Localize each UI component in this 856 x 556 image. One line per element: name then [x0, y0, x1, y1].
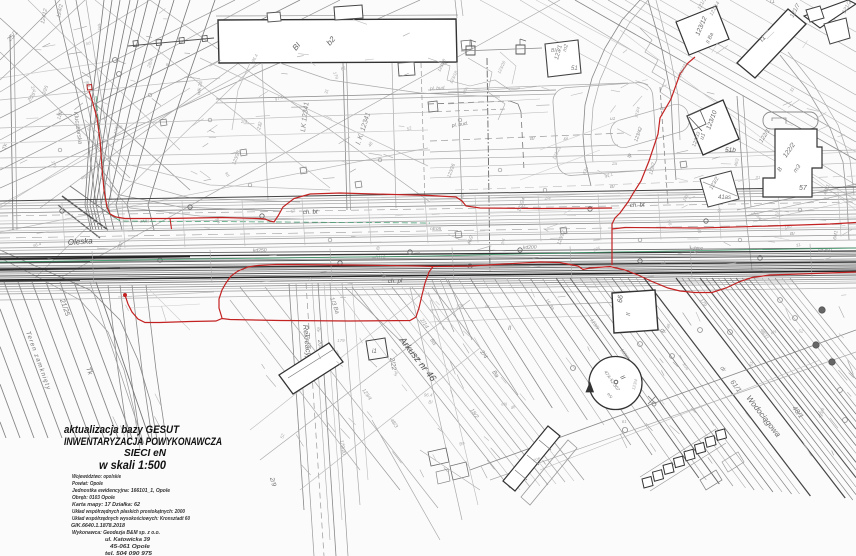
svg-text:tel. 504 090 975: tel. 504 090 975 [105, 551, 153, 556]
svg-text:45-061 Opole: 45-061 Opole [109, 544, 150, 550]
svg-text:BI: BI [551, 48, 556, 54]
svg-text:2/4: 2/4 [240, 119, 248, 124]
svg-text:Wykonawca: Geodezja B&M sp. z: Wykonawca: Geodezja B&M sp. z o.o. [72, 530, 160, 536]
svg-text:61: 61 [166, 62, 171, 67]
svg-text:II: II [508, 326, 512, 332]
svg-text:Oleska: Oleska [68, 236, 94, 247]
svg-text:Obręb: 0103 Opole: Obręb: 0103 Opole [72, 495, 115, 501]
svg-text:eN: eN [501, 402, 507, 407]
svg-text:ch. bt: ch. bt [303, 209, 318, 216]
svg-text:nE05: nE05 [430, 226, 442, 232]
svg-text:Powiat: Opole: Powiat: Opole [72, 481, 103, 487]
svg-text:41as: 41as [718, 195, 731, 201]
svg-text:66: 66 [617, 295, 625, 303]
svg-text:i1: i1 [372, 349, 377, 355]
svg-text:BI: BI [790, 231, 795, 237]
svg-text:51: 51 [571, 66, 578, 72]
svg-text:51b: 51b [725, 147, 736, 154]
svg-text:Jednostka ewidencyjna: 166101_: Jednostka ewidencyjna: 166101_1, Opole [72, 488, 170, 494]
svg-text:kd200: kd200 [690, 246, 703, 252]
svg-text:kd200: kd200 [523, 245, 537, 251]
svg-text:61: 61 [485, 304, 490, 309]
svg-text:GIK.6640.1.1878.2018: GIK.6640.1.1878.2018 [71, 523, 126, 529]
svg-text:w skali 1:500: w skali 1:500 [99, 460, 167, 472]
svg-text:ul. Katowicka 39: ul. Katowicka 39 [105, 537, 151, 543]
svg-text:kd250: kd250 [253, 248, 267, 254]
svg-text:BI: BI [530, 136, 535, 142]
svg-text:t1: t1 [770, 0, 775, 5]
svg-text:61: 61 [622, 419, 627, 424]
svg-text:57: 57 [799, 185, 808, 192]
svg-text:2a: 2a [611, 161, 618, 166]
svg-text:Tk: Tk [2, 143, 9, 150]
svg-text:Karta mapy: 17 Działka: 62: Karta mapy: 17 Działka: 62 [72, 502, 141, 508]
svg-text:179: 179 [337, 338, 345, 343]
svg-text:2/4: 2/4 [544, 195, 552, 200]
svg-text:wB110: wB110 [372, 255, 386, 260]
svg-text:SIECI eN: SIECI eN [124, 447, 166, 459]
svg-text:Układ współrzędnych płaskich p: Układ współrzędnych płaskich prostokątny… [72, 509, 186, 515]
svg-text:52: 52 [799, 329, 804, 334]
svg-text:u1: u1 [610, 116, 616, 122]
svg-text:31: 31 [755, 175, 760, 180]
svg-text:ch. bt: ch. bt [630, 202, 645, 209]
svg-text:179: 179 [456, 304, 464, 309]
svg-text:Układ współrzędnych wysokościo: Układ współrzędnych wysokościowych: Kron… [72, 516, 191, 522]
svg-text:ch. pl: ch. pl [388, 278, 403, 285]
svg-text:96.4: 96.4 [424, 392, 433, 397]
svg-text:BI: BI [660, 106, 665, 112]
svg-text:BI: BI [610, 184, 615, 190]
svg-text:pl. bud.: pl. bud. [429, 85, 446, 92]
svg-text:Województwo: opolskie: Województwo: opolskie [72, 474, 121, 480]
svg-text:aktualizacja bazy GESUT: aktualizacja bazy GESUT [64, 424, 180, 436]
